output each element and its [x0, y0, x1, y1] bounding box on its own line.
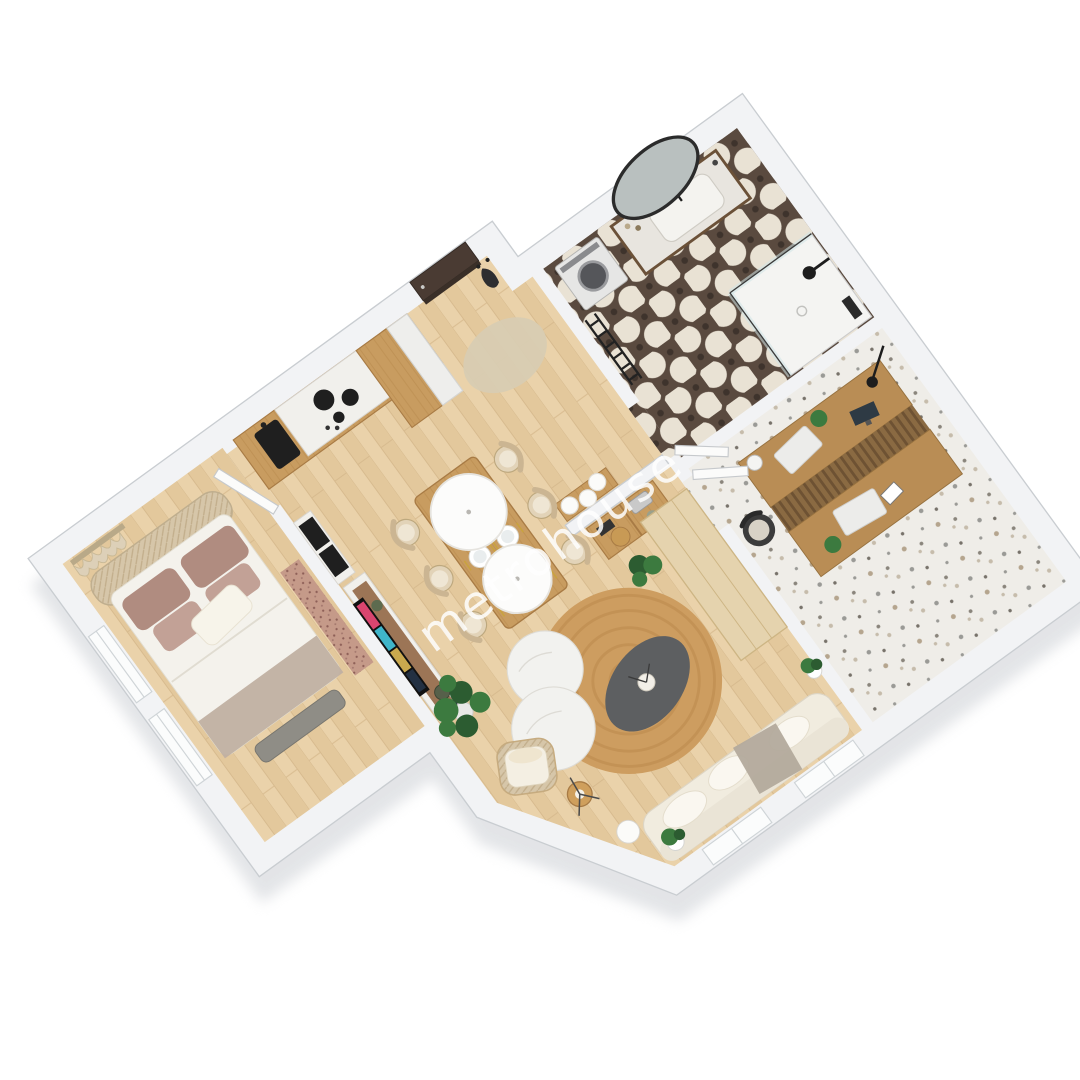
apartment: metrohouse — [17, 58, 1080, 1080]
floorplan-svg: metrohouse — [0, 0, 1080, 1080]
rattan-armchair — [495, 736, 559, 797]
bathroom-door-leaf — [675, 445, 728, 456]
floorplan-render-canvas: metrohouse — [0, 0, 1080, 1080]
